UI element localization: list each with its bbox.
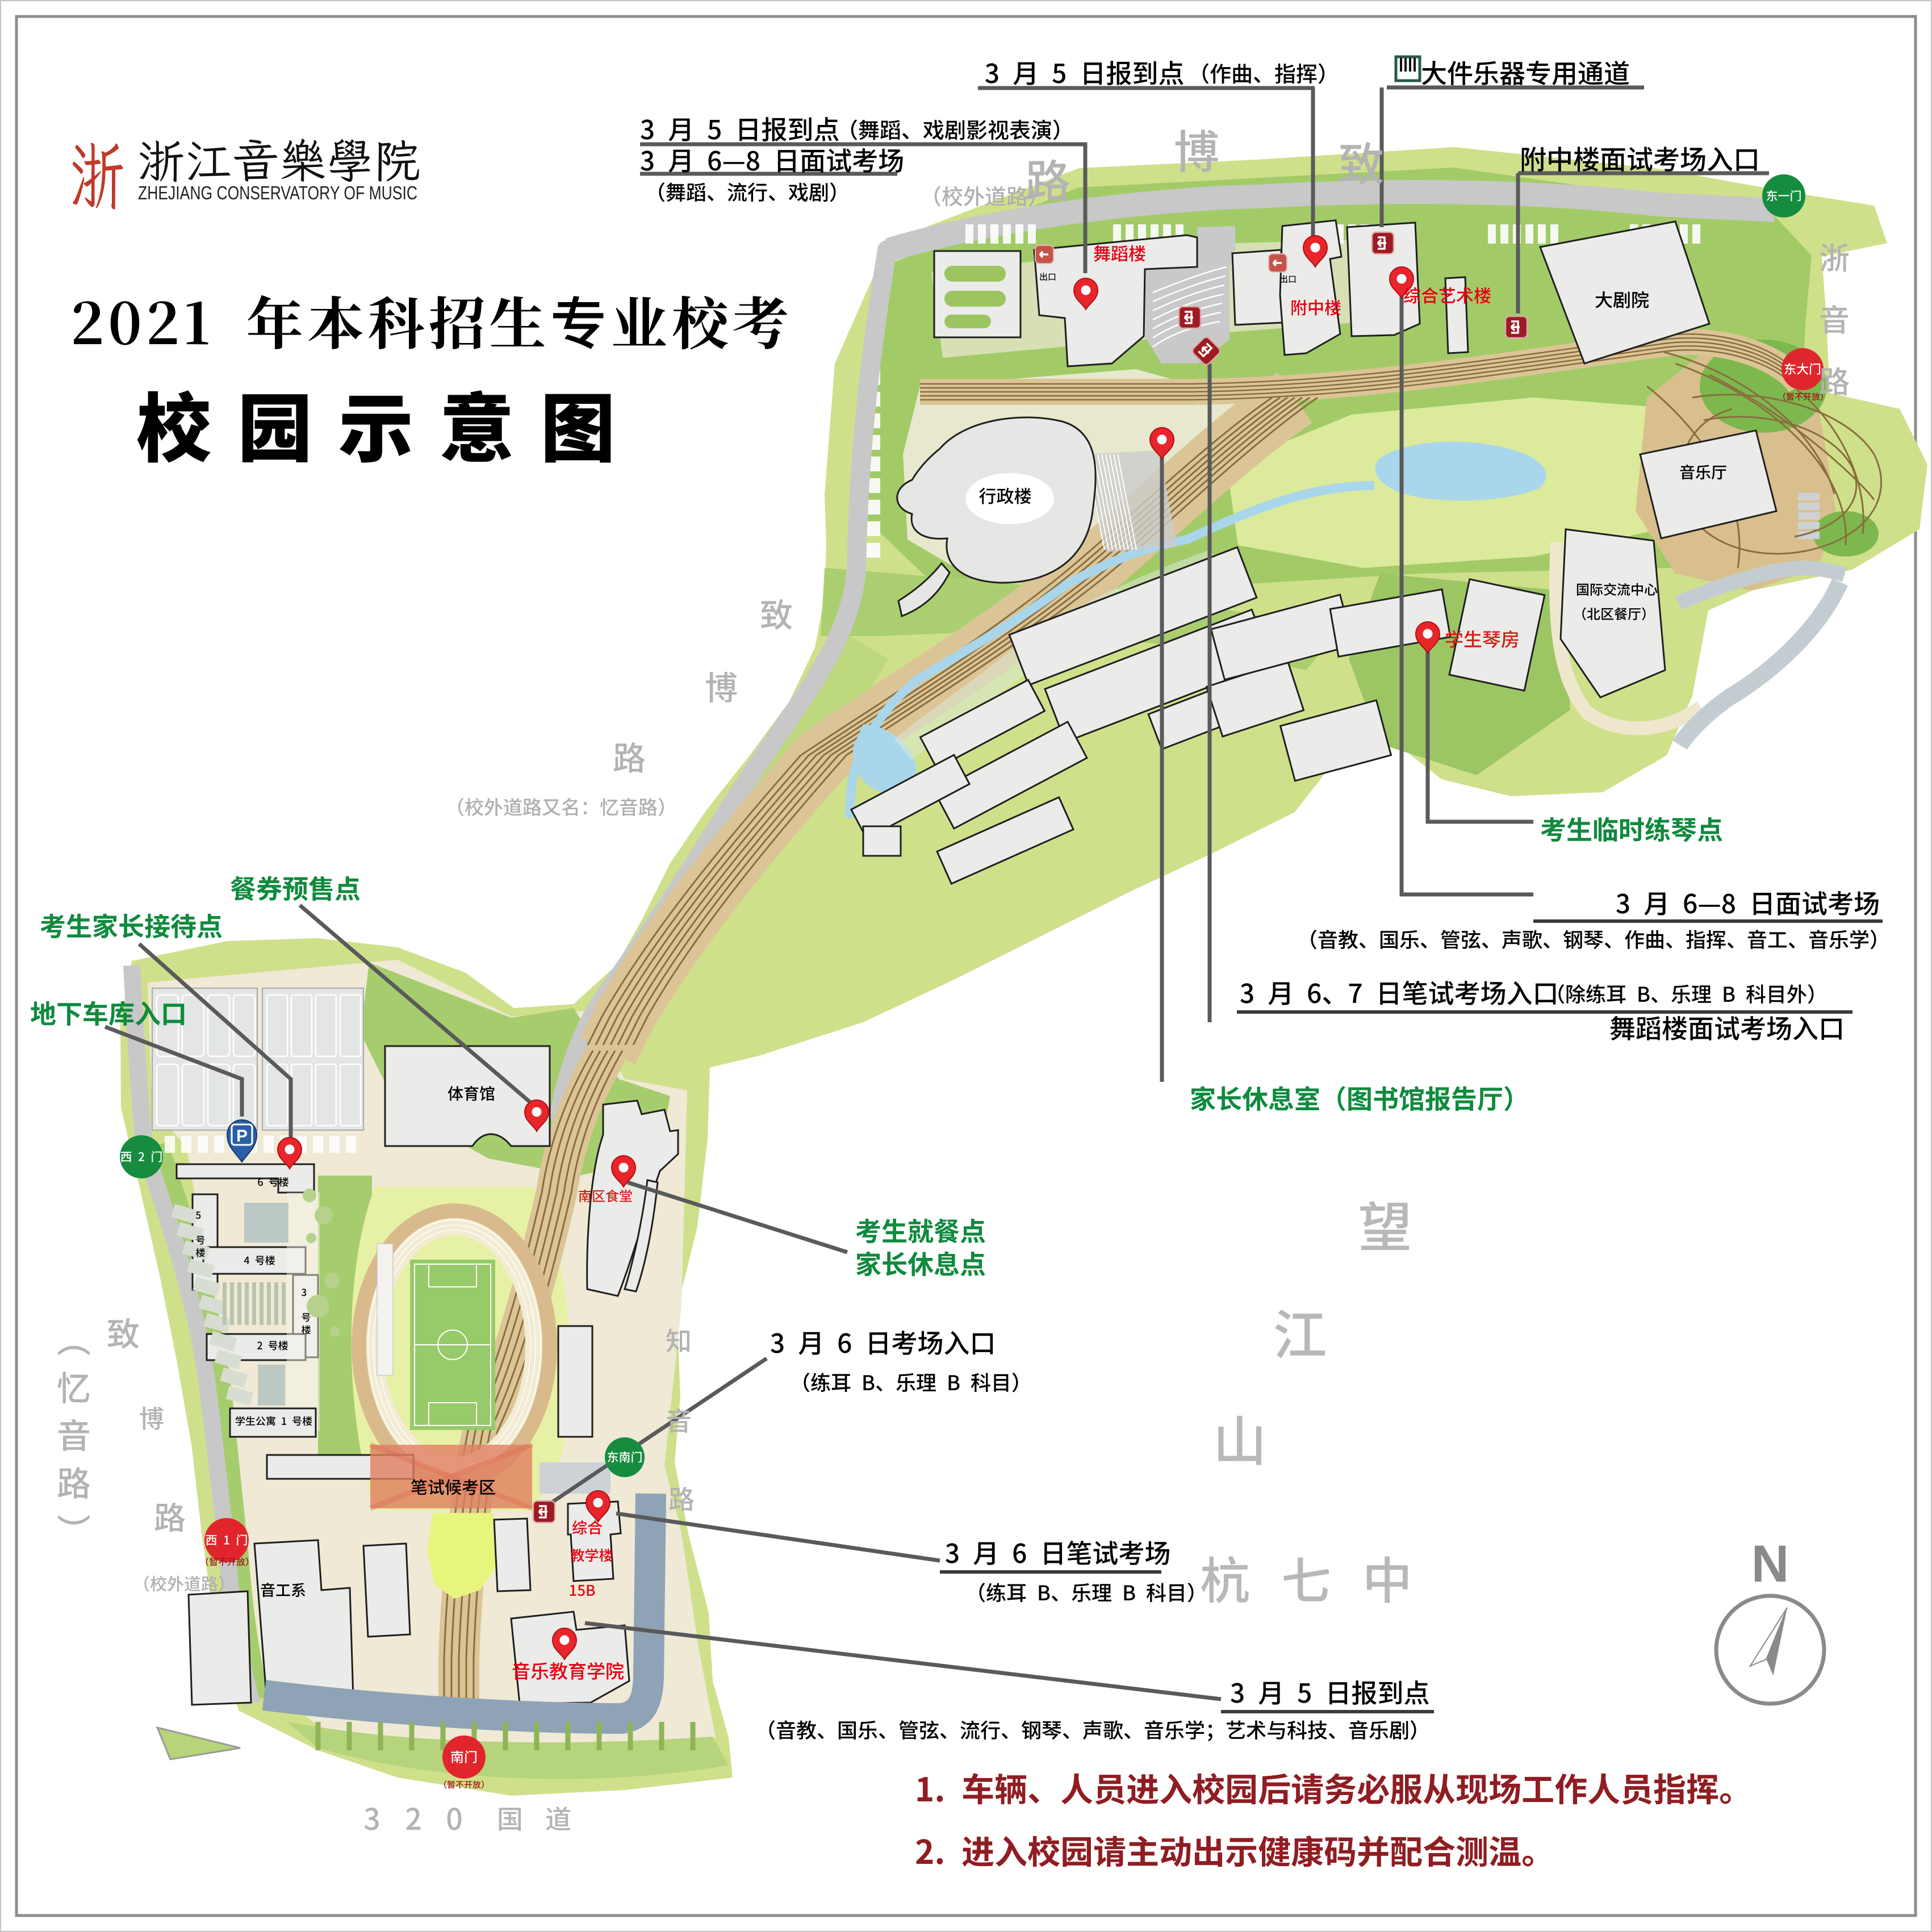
svg-text:P: P [236, 1127, 248, 1145]
svg-text:ZHEJIANG CONSERVATORY OF MUSIC: ZHEJIANG CONSERVATORY OF MUSIC [138, 182, 417, 203]
svg-text:N: N [1751, 1535, 1789, 1593]
